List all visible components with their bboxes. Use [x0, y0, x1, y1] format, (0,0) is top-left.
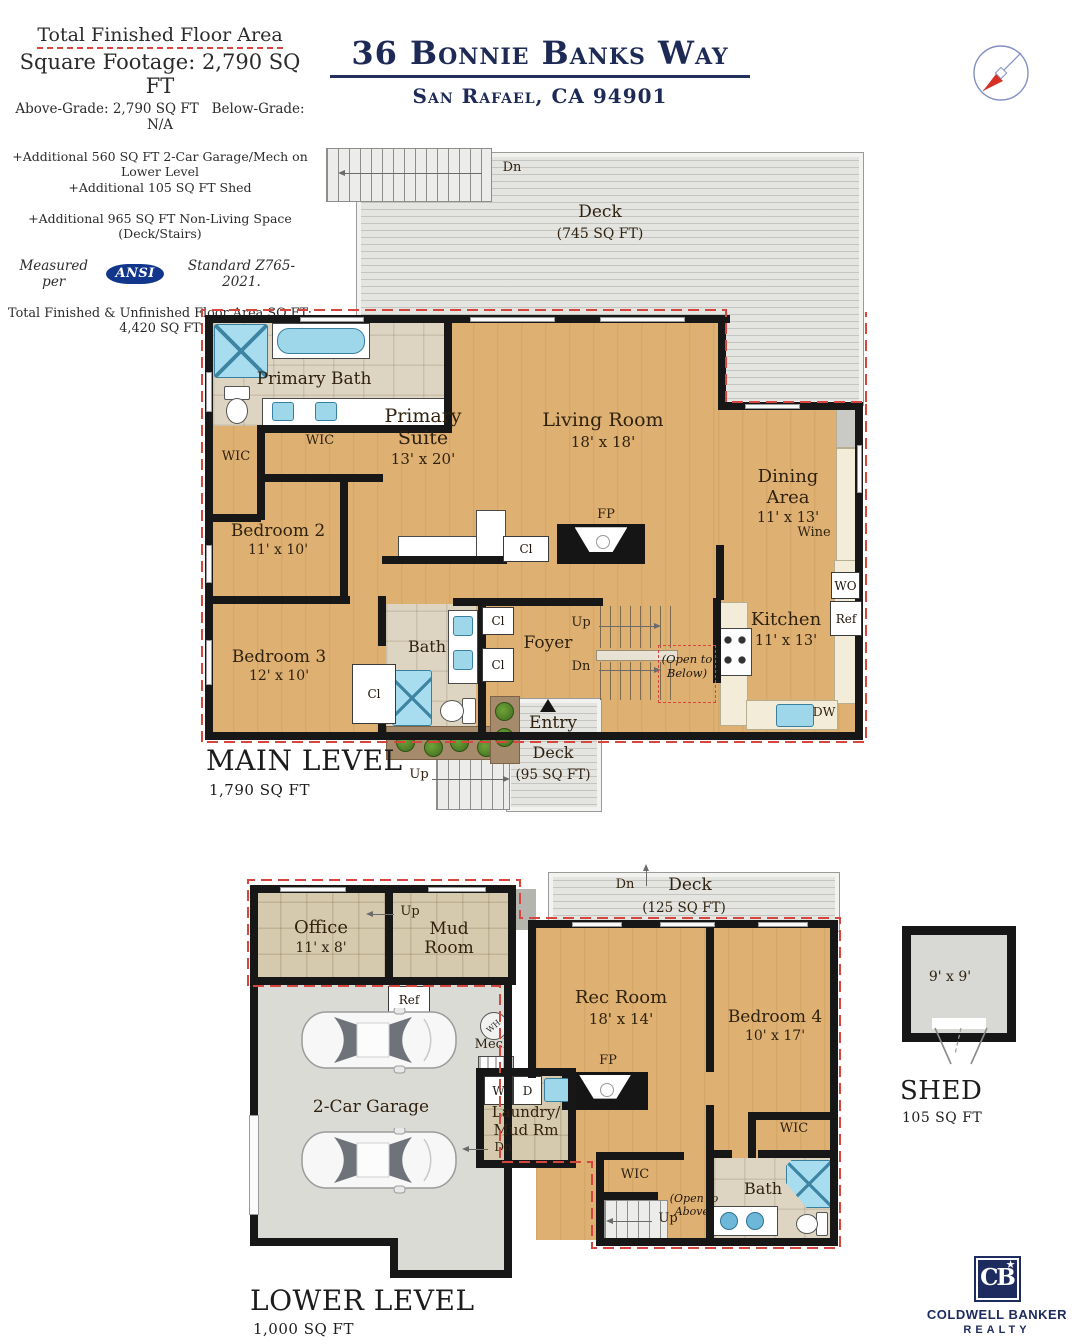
room-bedroom3: Bedroom 3 12' x 10' — [213, 648, 345, 685]
laundry-dn-arrow — [464, 1149, 488, 1150]
main-deck-stairs — [326, 148, 492, 202]
shed-door-icon — [925, 1026, 995, 1076]
cb-monogram-icon: CB ★ — [974, 1256, 1021, 1302]
additional-nonliving: +Additional 965 SQ FT Non-Living Space (… — [6, 211, 314, 241]
foyer-dn-arrow — [599, 670, 659, 671]
above-grade: Above-Grade: 2,790 SQ FT — [15, 101, 198, 117]
star-icon: ★ — [1006, 1258, 1016, 1271]
entry-deck-label: Deck — [514, 744, 592, 762]
shed-dims: 9' x 9' — [910, 970, 990, 986]
room-bedroom4: Bedroom 4 10' x 17' — [710, 1008, 840, 1045]
wic-bedroom4: WIC — [758, 1122, 830, 1137]
closet-label: Cl — [519, 542, 532, 556]
title-rule — [330, 75, 750, 78]
entry-deck-sqft: (95 SQ FT) — [506, 768, 600, 783]
entry-label: Entry — [512, 714, 594, 733]
mud-up-label: Up — [394, 905, 426, 920]
room-office: Office 11' x 8' — [258, 918, 384, 956]
hall-shower — [392, 670, 432, 726]
wine-label: Wine — [790, 526, 838, 541]
wic-1: WIC — [212, 450, 260, 465]
lower-sink-right — [746, 1212, 764, 1230]
shed-title: SHED — [900, 1076, 982, 1106]
additional-shed: +Additional 105 SQ FT Shed — [6, 180, 314, 195]
lower-toilet — [796, 1214, 818, 1234]
brand-line1: COLDWELL BANKER — [918, 1307, 1074, 1322]
deck-stairs-down-arrow — [340, 173, 482, 174]
room-garage: 2-Car Garage — [295, 1098, 447, 1117]
open-to-above-note: (Open to Above) — [668, 1192, 720, 1218]
property-address: 36 Bonnie Banks Way — [320, 34, 760, 72]
foyer-stairs-up — [600, 606, 672, 648]
brand-line2: REALTY — [918, 1324, 1074, 1336]
room-mud: Mud Room — [408, 920, 490, 959]
hall-toilet — [440, 700, 464, 722]
foyer-up-arrow — [599, 626, 659, 627]
entry-marker-icon — [540, 699, 556, 712]
room-primary-suite: Primary Suite 13' x 20' — [352, 406, 494, 468]
room-primary-bath: Primary Bath — [230, 370, 398, 389]
foyer-dn-label: Dn — [566, 660, 596, 675]
brand-logo: CB ★ COLDWELL BANKER REALTY — [918, 1256, 1074, 1336]
lower-deck-dn-arrow — [646, 866, 647, 886]
main-level-title: MAIN LEVEL — [206, 744, 403, 777]
entry-stairs-up-arrow — [432, 779, 508, 780]
fp-label-main: FP — [586, 508, 626, 523]
room-dining: Dining Area 11' x 13' — [733, 467, 843, 527]
additional-garage: +Additional 560 SQ FT 2-Car Garage/Mech … — [6, 149, 314, 179]
room-lower-bath: Bath — [726, 1180, 800, 1198]
dryer-icon: D — [513, 1076, 542, 1105]
lower-level-sqft: 1,000 SQ FT — [253, 1320, 354, 1338]
lower-deck-dn-label: Dn — [608, 878, 642, 893]
primary-tub — [277, 328, 365, 354]
property-header: 36 Bonnie Banks Way San Rafael, CA 94901 — [320, 34, 760, 108]
measured-line: Measured per ANSI Standard Z765-2021. — [6, 258, 314, 290]
foyer-up-label: Up — [566, 616, 596, 631]
open-to-below-note: (Open to Below) — [658, 645, 716, 703]
laundry-sink — [544, 1078, 570, 1102]
living-closet: Cl — [503, 536, 549, 562]
main-deck-label: Deck — [540, 203, 660, 222]
summary-grade-line: Above-Grade: 2,790 SQ FT Below-Grade: N/… — [6, 101, 314, 133]
floor-plan-page: { "info_panel": { "heading": "Total Fini… — [0, 0, 1074, 1344]
compass-icon — [968, 40, 1034, 106]
fp-label-lower: FP — [592, 1054, 624, 1069]
foyer-closet-top: Cl — [482, 607, 514, 635]
suite-closet-column — [476, 510, 506, 562]
room-kitchen: Kitchen 11' x 13' — [731, 610, 841, 649]
hall-toilet-tank — [462, 698, 476, 724]
lower-level-title: LOWER LEVEL — [250, 1284, 475, 1317]
plant-icon — [424, 738, 443, 757]
lower-sink-left — [720, 1212, 738, 1230]
property-city: San Rafael, CA 94901 — [320, 84, 760, 108]
main-level-sqft: 1,790 SQ FT — [209, 781, 310, 799]
room-rec: Rec Room 18' x 14' — [555, 988, 687, 1028]
mud-up-arrow — [368, 914, 394, 915]
lower-deck-label: Deck — [650, 876, 730, 895]
wall-oven: WO — [831, 572, 860, 599]
wic-lower: WIC — [602, 1168, 668, 1183]
lower-deck-sqft: (125 SQ FT) — [622, 901, 746, 916]
laundry-dn-label: Dn — [488, 1141, 518, 1155]
dishwasher-label: DW — [806, 705, 842, 719]
primary-sink-right — [315, 402, 337, 421]
bedroom3-closet: Cl — [352, 664, 396, 724]
car-icon — [300, 1128, 458, 1194]
room-foyer: Foyer — [505, 634, 591, 653]
room-hall-bath: Bath — [395, 638, 459, 656]
summary-heading: Total Finished Floor Area — [6, 24, 314, 49]
entry-stairs-up-label: Up — [404, 768, 434, 783]
main-deck-sqft: (745 SQ FT) — [535, 227, 665, 243]
summary-square-footage: Square Footage: 2,790 SQ FT — [6, 50, 314, 98]
area-summary-panel: Total Finished Floor Area Square Footage… — [6, 24, 314, 336]
room-bedroom2: Bedroom 2 11' x 10' — [212, 522, 344, 559]
car-icon — [300, 1008, 458, 1074]
fireplace-main — [557, 524, 645, 564]
hall-sink-top — [453, 616, 473, 636]
room-living: Living Room 18' x 18' — [518, 410, 688, 451]
shed-sqft: 105 SQ FT — [902, 1110, 982, 1126]
ansi-logo: ANSI — [106, 264, 163, 284]
laundry-label-2: Mud Rm — [482, 1122, 570, 1139]
deck-stairs-dn-label: Dn — [495, 161, 529, 176]
primary-toilet — [226, 398, 248, 424]
lower-stairs-up-arrow — [608, 1221, 652, 1222]
primary-tub-surround — [272, 323, 370, 359]
primary-sink-left — [272, 402, 294, 421]
laundry-label-1: Laundry/ — [482, 1104, 570, 1121]
